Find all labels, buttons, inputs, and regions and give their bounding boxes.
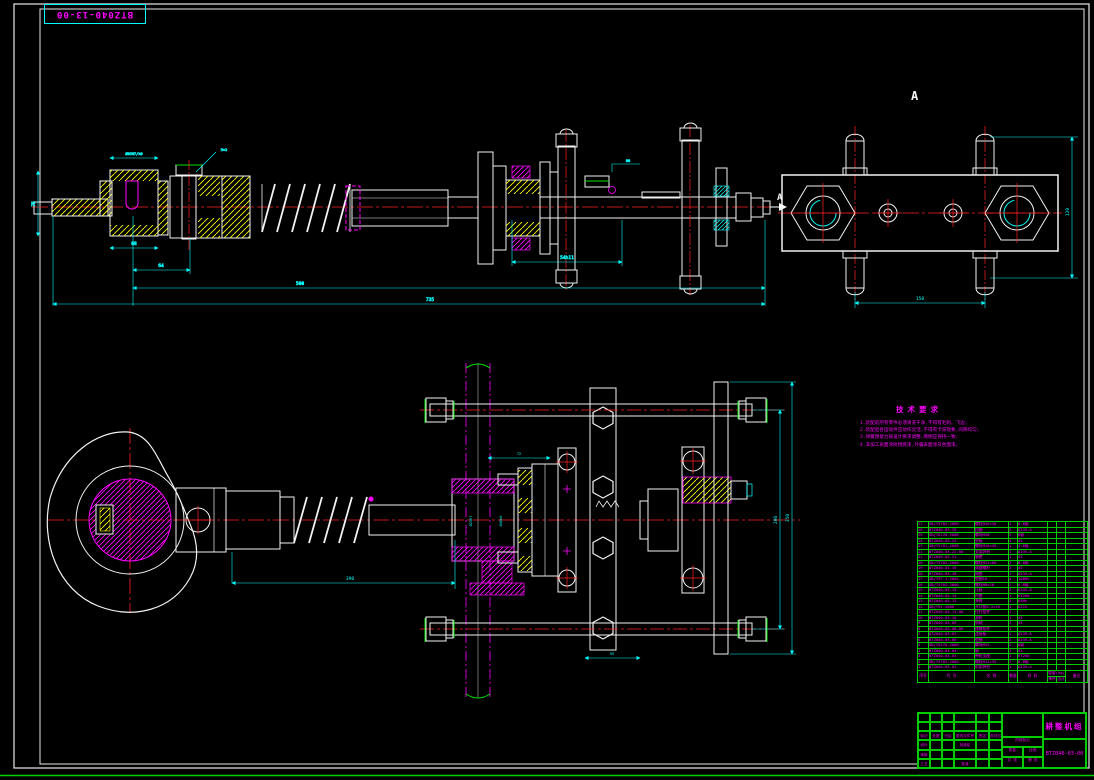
stud-bolt-2 <box>680 123 701 295</box>
bom-header-code: 代 号 <box>929 670 975 682</box>
dim-va-height: 120 <box>1065 208 1071 217</box>
bolt-holes <box>874 199 967 227</box>
top-assembly-view <box>32 123 786 295</box>
dim-shaft-fit: Ø25H7 <box>468 516 473 527</box>
title-block-row: 设计 标准化 <box>918 740 1002 749</box>
scale-label: 比例 <box>1023 747 1044 757</box>
sheets-label: 共 张 <box>1002 757 1023 768</box>
hex-nut-right <box>983 183 1051 243</box>
mass-label: 质量 <box>1002 747 1023 757</box>
title-block-row <box>918 722 1002 731</box>
bom-header-unit: 单件 <box>1048 676 1057 682</box>
title-block-middle: 阶段标记 质量 比例 共 张 第 张 <box>1002 713 1043 768</box>
title-block-row: 审核 <box>918 750 1002 759</box>
slot-detail <box>126 181 138 209</box>
sheet-label: 第 张 <box>1023 757 1044 768</box>
dim-bolt-spacing: 206 <box>773 516 779 525</box>
section-view-a: A <box>778 89 1078 308</box>
tech-requirements: 技术要求 1.装配前所有零件必须清洗干净,不得有毛刺、飞边; 2.装配后各运动件… <box>860 404 1020 449</box>
bom-table: 27 GB/T5783-2000 螺栓M10×30 2 8.8级 26 BTZ0… <box>917 521 1088 683</box>
dim-thread: M8 <box>626 159 630 163</box>
dim-frame-height: 350 <box>785 514 791 523</box>
title-block-row: 工艺 批准 <box>918 759 1002 768</box>
stud-bolt-1 <box>556 129 577 292</box>
title-block-revision-grid: 标记 处数 分区 更改文件号 签名 年月日 设计 标准化 审核 工艺 批准 <box>918 713 1002 768</box>
title-block-row <box>918 713 1002 722</box>
dim-hub-fit: Ø40k6 <box>498 516 503 527</box>
spring-top-view <box>262 184 350 232</box>
title-block-row: 标记 处数 分区 更改文件号 签名 年月日 <box>918 731 1002 740</box>
tech-requirements-title: 技术要求 <box>896 404 1020 415</box>
bom-header-material: 材 料 <box>1018 670 1048 682</box>
dim-overall: 735 <box>426 297 435 303</box>
dim-hub: 54h11 <box>560 255 574 261</box>
key-section <box>100 508 110 531</box>
tech-requirement-line: 2.装配后各运动件应动作灵活,不得有卡滞现象,间隙均匀; <box>860 427 1020 434</box>
bom-header-no: 序号 <box>918 670 929 682</box>
drawing-title: 耕整机组 <box>1043 713 1086 739</box>
view-a-title: A <box>911 89 919 103</box>
bom-header-name: 名 称 <box>975 670 1009 682</box>
corner-studs <box>843 126 997 303</box>
dim-slot: 5×2 <box>221 148 228 152</box>
drawing-number: BTZ040-03-00 <box>1043 739 1086 768</box>
hex-nut-left <box>789 183 857 243</box>
bom-header-note: 备注 <box>1066 670 1088 682</box>
title-block-right: 耕整机组 BTZ040-03-00 <box>1043 713 1086 768</box>
dim-height: 75 <box>31 201 37 207</box>
stage-label: 阶段标记 <box>1002 737 1043 747</box>
dim-column: 95 <box>610 652 614 656</box>
tech-requirement-line: 4.非加工表面涂防锈底漆,外露表面涂灰色面漆。 <box>860 442 1020 449</box>
drawing-number-tag-text: BTZ040-13-00 <box>56 9 133 19</box>
central-column <box>590 388 619 650</box>
bom-header-weight: 重量(kg) <box>1048 670 1066 676</box>
drawing-number-tag: BTZ040-13-00 <box>44 4 146 24</box>
hatched-sleeve <box>683 477 731 503</box>
top-tie-bolt <box>420 398 788 423</box>
bom-header: 序号 代 号 名 称 数量 材 料 重量(kg) 备注 单件 总计 <box>918 670 1088 682</box>
dim-flange: 72 <box>517 452 521 456</box>
phantom-wheel <box>466 363 490 698</box>
tall-plate <box>714 382 728 654</box>
bottom-assembly-view: Ø25H7 Ø40k6 <box>47 363 800 698</box>
dim-block: 68 <box>131 241 137 247</box>
dim-offset: 64 <box>158 263 164 269</box>
bom-header-qty: 数量 <box>1009 670 1018 682</box>
tech-requirement-line: 3.弹簧预紧力按设计要求调整,两侧应保持一致; <box>860 434 1020 441</box>
dim-span: 500 <box>296 281 305 287</box>
dim-rod: 390 <box>346 576 355 582</box>
cad-sheet: 75 Ø35H7/k6 5×2 68 64 54h11 500 735 M8 A… <box>0 0 1094 780</box>
view-a-dimensions <box>855 137 1078 308</box>
stamp-box <box>1002 713 1043 737</box>
dim-bore: Ø35H7/k6 <box>125 151 142 156</box>
bom-header-total: 总计 <box>1057 676 1066 682</box>
tech-requirement-line: 1.装配前所有零件必须清洗干净,不得有毛刺、飞边; <box>860 420 1020 427</box>
dim-va-width: 150 <box>916 296 925 302</box>
title-block: 标记 处数 分区 更改文件号 签名 年月日 设计 标准化 审核 工艺 批准 <box>917 712 1087 769</box>
